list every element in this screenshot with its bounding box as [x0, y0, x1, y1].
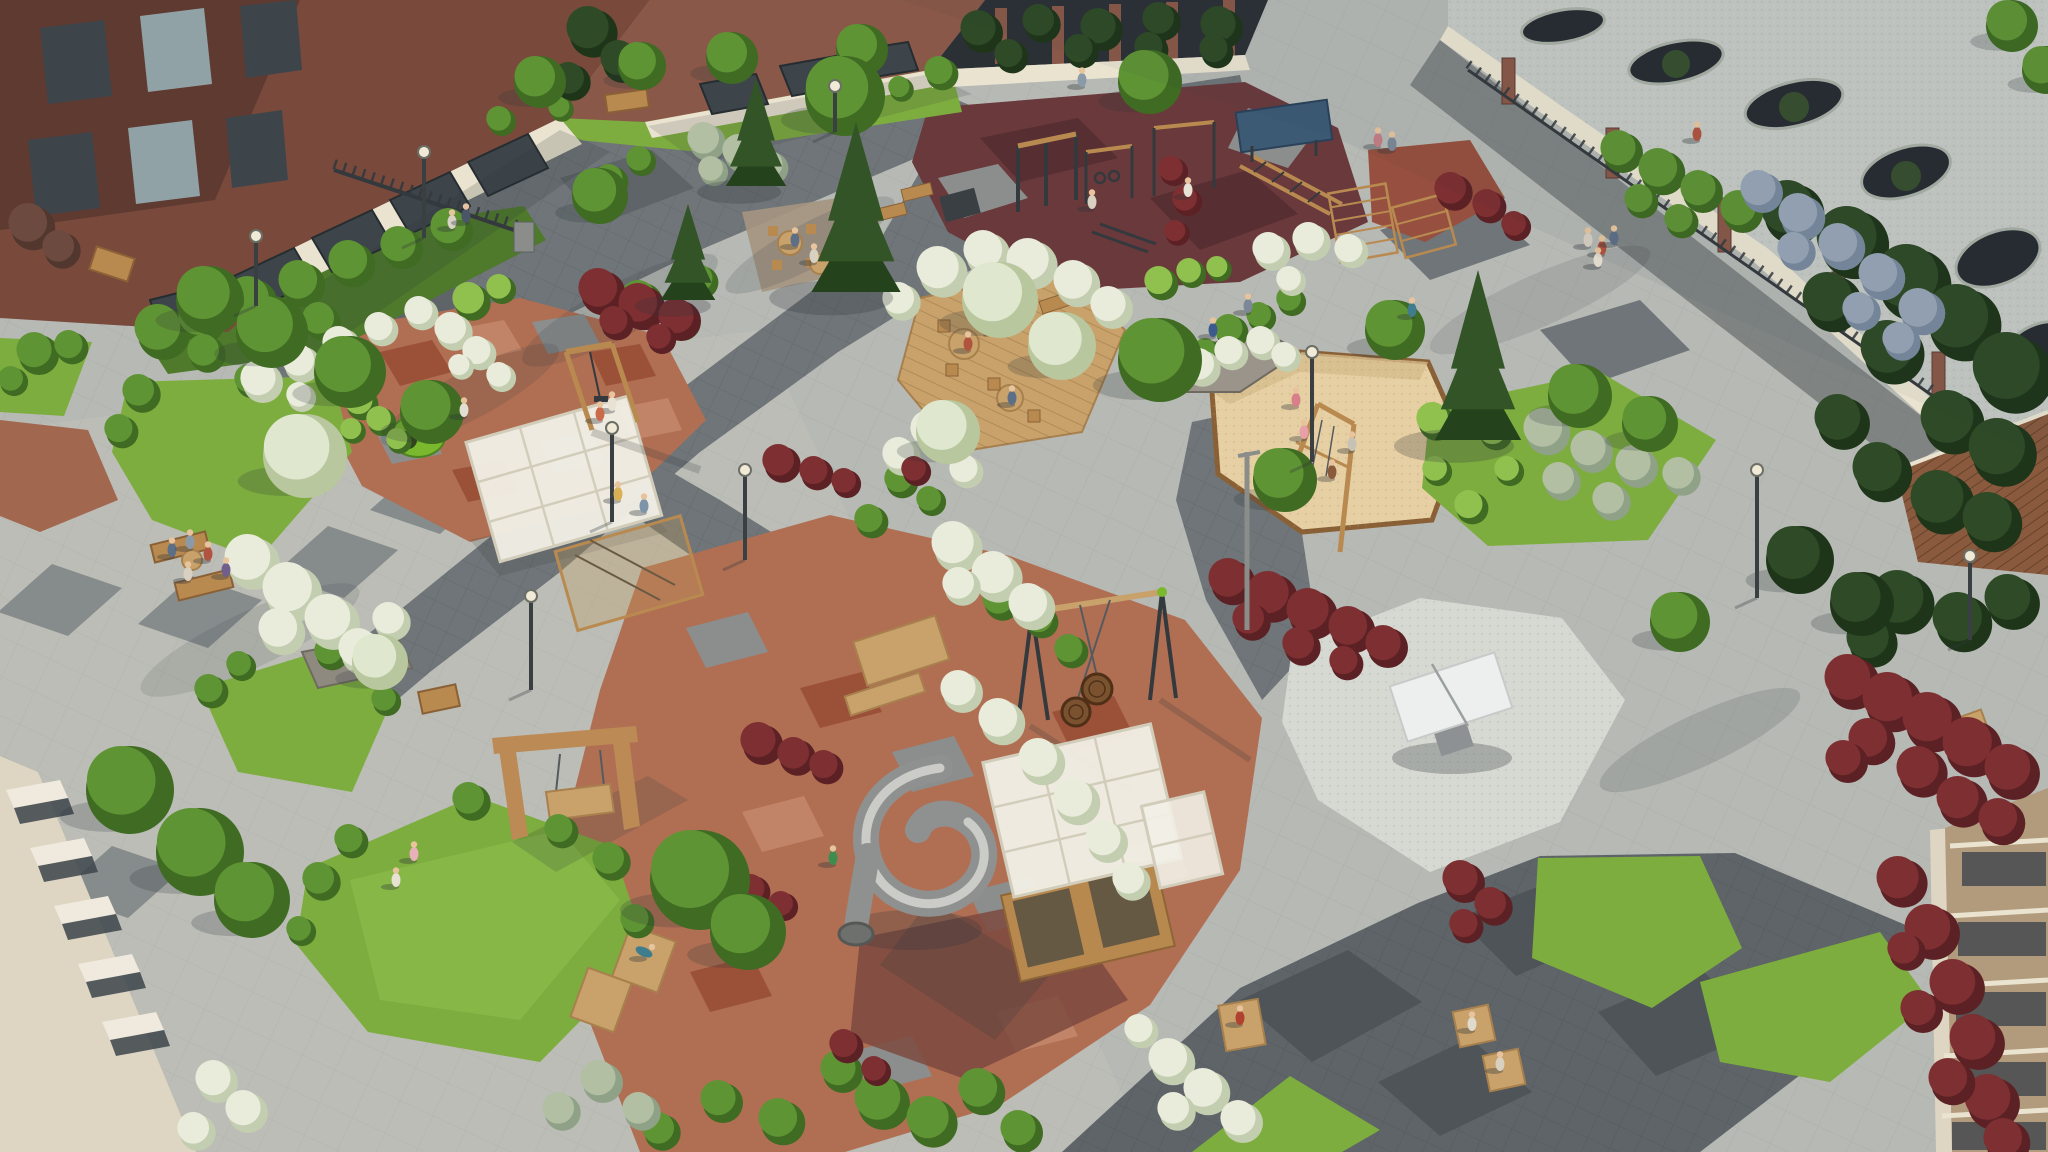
bush-cluster-white: [1252, 232, 1284, 264]
bush-cluster-red: [1158, 156, 1183, 181]
bush-cluster-lime: [340, 418, 361, 439]
bush-cluster-green: [16, 332, 51, 367]
bush-cluster-white: [434, 312, 466, 344]
street-lamp-head: [606, 422, 618, 434]
bush-cluster-white: [942, 567, 974, 599]
bush-cluster-red: [799, 456, 827, 484]
jogger-head: [1210, 317, 1216, 323]
street-lamp-head: [739, 464, 751, 476]
bush-cluster-red: [777, 737, 809, 769]
bush-cluster-green: [544, 814, 572, 842]
bench-group-sitter: [184, 567, 193, 581]
bush-cluster-lime: [1144, 266, 1172, 294]
bush-cluster-red: [1474, 887, 1506, 919]
bush-cluster-sage: [1662, 457, 1694, 489]
bush-cluster-green: [104, 414, 132, 442]
bench-group-sitter-head: [169, 537, 175, 543]
bush-cluster-lime: [1206, 256, 1227, 277]
blossom-tree: [272, 423, 304, 455]
bush-cluster-green: [888, 76, 909, 97]
bush-cluster-red: [831, 468, 856, 493]
cafe-sitter-head: [792, 227, 798, 233]
bush-cluster-red: [1985, 744, 2031, 790]
bush-cluster-red: [1936, 776, 1978, 818]
deck-sitter: [964, 337, 973, 351]
bush-cluster-white: [978, 698, 1017, 737]
bush-cluster-dark: [1985, 574, 2031, 620]
bush-cluster-red: [1978, 798, 2017, 837]
window: [1958, 922, 2046, 956]
street-lamp-head: [418, 146, 430, 158]
exerciser-head: [1089, 189, 1095, 195]
bush-cluster-green: [1054, 634, 1082, 662]
bush-cluster-dark: [1933, 592, 1982, 641]
pedestrian-head: [463, 203, 469, 209]
tree: [407, 387, 431, 411]
street-lamp-head: [250, 230, 262, 242]
bush-cluster-green: [452, 782, 484, 814]
street-lamp-head: [1751, 464, 1763, 476]
bush-cluster-green: [906, 1096, 948, 1138]
tree-dark: [1773, 533, 1799, 559]
bench-group-sitter-head: [187, 529, 193, 535]
pedestrian: [410, 847, 419, 861]
cafe-chair: [806, 224, 816, 234]
tree-dark: [1837, 579, 1861, 603]
window: [1962, 852, 2046, 886]
bush-cluster-green: [328, 240, 367, 279]
bench-group-sitter: [204, 547, 213, 561]
bush-cluster-red: [1943, 717, 1992, 766]
tree: [322, 344, 349, 371]
bush-cluster-white: [1148, 1038, 1187, 1077]
bush-cluster-red: [1329, 646, 1357, 674]
street-lamp-head: [525, 590, 537, 602]
person-on-lounger-head: [649, 944, 655, 950]
window: [226, 110, 288, 188]
bush-cluster-white: [940, 670, 975, 705]
pedestrian: [462, 209, 471, 223]
basket-swing-seat: [1062, 698, 1090, 726]
bush-cluster-red: [1328, 606, 1367, 645]
bush-cluster-white: [1334, 234, 1362, 262]
bush-cluster-red: [861, 1056, 886, 1081]
bush-cluster-sage: [687, 122, 719, 154]
child-playing: [640, 499, 649, 513]
bush-cluster-dark: [1815, 394, 1861, 440]
bush-cluster-white: [916, 246, 958, 288]
child-walking-head: [393, 867, 399, 873]
cafe-sitter: [810, 249, 819, 263]
bush-cluster-red: [1286, 588, 1328, 630]
child-in-sandbox: [1348, 437, 1357, 451]
basket-swing-seat: [1082, 674, 1112, 704]
slide-exit: [856, 855, 868, 928]
bush-cluster-green: [924, 56, 952, 84]
bush-cluster-red: [1449, 909, 1477, 937]
bush-cluster-red: [1164, 220, 1185, 241]
child-playing-head: [641, 493, 647, 499]
bush-cluster-green: [1000, 1110, 1035, 1145]
child-playing-head: [615, 481, 621, 487]
bush-cluster-green: [958, 1068, 997, 1107]
deck-sitter: [1008, 391, 1017, 405]
bush-cluster-white: [225, 534, 271, 580]
tree: [661, 841, 699, 879]
bush-cluster-white: [1157, 1092, 1189, 1124]
cafe-chair: [772, 260, 782, 270]
bush-cluster-sage: [1542, 462, 1574, 494]
bush-cluster-white: [486, 362, 511, 387]
child-walking: [392, 873, 401, 887]
bush-cluster-red: [599, 306, 627, 334]
bench-sitter-head: [1237, 1005, 1243, 1011]
pedestrian-head: [1079, 67, 1085, 73]
pedestrian-head: [411, 841, 417, 847]
tree: [96, 756, 129, 789]
bush-cluster-green: [54, 330, 82, 358]
tree: [1657, 599, 1680, 622]
bush-cluster-red: [1928, 1058, 1967, 1097]
bench-group-sitter: [168, 543, 177, 557]
bush-cluster-red: [1442, 860, 1477, 895]
bush-cluster-white: [1246, 326, 1274, 354]
pedestrian: [1078, 73, 1087, 87]
bush-cluster-red: [1950, 1014, 1996, 1060]
tree: [183, 273, 209, 299]
child-playing: [614, 487, 623, 501]
bush-cluster-red: [809, 750, 837, 778]
bush-cluster-red: [1282, 627, 1314, 659]
exerciser: [1088, 195, 1097, 209]
tree: [166, 818, 199, 851]
blossom-tree: [1035, 319, 1061, 345]
bush-cluster-white: [258, 608, 297, 647]
bush-cluster-white: [1124, 1014, 1152, 1042]
tree: [712, 38, 732, 58]
parent-at-swing: [608, 397, 617, 411]
bush-cluster-dark: [994, 39, 1022, 67]
deck-sitter-head: [965, 331, 971, 337]
bush-cluster-green: [626, 146, 651, 171]
bush-cluster-green: [286, 916, 311, 941]
bush-cluster-white: [1090, 286, 1125, 321]
bush-cluster-lime: [486, 274, 511, 299]
blossom-tree: [970, 270, 999, 299]
child-on-swing-head: [597, 401, 603, 407]
bush-cluster-green: [854, 504, 882, 532]
parent-at-sandbox-head: [1293, 387, 1299, 393]
window: [240, 0, 302, 78]
child-in-sandbox-head: [1301, 419, 1307, 425]
bush-cluster-white: [372, 602, 404, 634]
deck-sitter-head: [1009, 385, 1015, 391]
bush-cluster-sage: [1592, 482, 1624, 514]
street-lamp-head: [1306, 346, 1318, 358]
bush-cluster-white: [1053, 778, 1092, 817]
bush-cluster-white: [1214, 336, 1242, 364]
tree: [578, 174, 599, 195]
tree: [623, 47, 641, 65]
jogger-head: [1409, 297, 1415, 303]
tree: [842, 30, 862, 50]
street-lamp-head: [829, 80, 841, 92]
jogger: [1408, 303, 1417, 317]
bush-cluster-lime: [1176, 258, 1201, 283]
bush-cluster-green: [916, 486, 941, 511]
bush-cluster-sage: [622, 1092, 654, 1124]
window: [128, 120, 200, 204]
bush-cluster-red: [1825, 740, 1860, 775]
window: [40, 20, 112, 104]
child-in-sandbox: [1300, 425, 1309, 439]
parent-at-swing-head: [609, 391, 615, 397]
bush-cluster-dark: [1911, 470, 1964, 523]
bush-cluster-white: [1085, 820, 1120, 855]
bush-cluster-sage: [580, 1060, 615, 1095]
scene-layers: [0, 0, 2048, 1152]
bush-cluster-white: [404, 296, 432, 324]
child-in-sandbox-head: [1329, 459, 1335, 465]
bush-cluster-white: [1112, 862, 1144, 894]
armchair-sitter-head: [1469, 1011, 1475, 1017]
bush-cluster-green: [592, 842, 624, 874]
bench-group-sitter-head: [205, 541, 211, 547]
bush-cluster-red: [1365, 625, 1400, 660]
bush-cluster-green: [486, 106, 511, 131]
bush-cluster-redbrown: [42, 230, 74, 262]
bush-cluster-red: [762, 444, 794, 476]
bush-cluster-green: [700, 1080, 735, 1115]
cafe-chair: [768, 226, 778, 236]
tree: [520, 62, 540, 82]
child-in-sandbox: [1328, 465, 1337, 479]
bench-group-sitter-head: [185, 561, 191, 567]
tree: [222, 870, 251, 899]
bush-cluster-green: [122, 374, 154, 406]
bush-cluster-white: [195, 1060, 230, 1095]
armchair-sitter-head: [1497, 1051, 1503, 1057]
deck-chair: [1028, 410, 1040, 422]
bush-cluster-sage: [698, 156, 723, 181]
exerciser: [1184, 183, 1193, 197]
deck-chair: [988, 378, 1000, 390]
bush-cluster-white: [1018, 738, 1057, 777]
exerciser-head: [1185, 177, 1191, 183]
window: [140, 8, 212, 92]
blossom-tree: [358, 640, 379, 661]
bush-cluster-lime: [1494, 456, 1519, 481]
bush-cluster-red: [1896, 746, 1938, 788]
courtyard-aerial-render: [0, 0, 2048, 1152]
parent-at-sandbox: [1292, 393, 1301, 407]
bush-cluster-lime: [452, 282, 484, 314]
bush-cluster-white: [263, 562, 312, 611]
bench-group-sitter-head: [223, 557, 229, 563]
pedestrian-head: [461, 397, 467, 403]
pedestrian: [460, 403, 469, 417]
pedestrian-head: [449, 209, 455, 215]
child-in-green-dress-head: [830, 845, 836, 851]
bush-cluster-dark: [566, 6, 608, 48]
child-in-sandbox-head: [1349, 431, 1355, 437]
bush-cluster-white: [931, 521, 973, 563]
deck-chair: [946, 364, 958, 376]
blossom-tree: [923, 407, 947, 431]
bush-cluster-white: [448, 354, 469, 375]
bush-cluster-white: [1271, 342, 1296, 367]
bush-cluster-green: [194, 674, 222, 702]
bench-sitter: [1236, 1011, 1245, 1025]
bush-cluster-sage: [1570, 430, 1605, 465]
jogger: [1209, 323, 1218, 337]
bench-group-sitter: [222, 563, 231, 577]
bush-cluster-red: [1876, 856, 1918, 898]
bush-cluster-green: [278, 260, 317, 299]
bush-cluster-sage: [542, 1092, 574, 1124]
child-on-swing: [596, 407, 605, 421]
cafe-sitter: [791, 233, 800, 247]
tree: [1555, 371, 1579, 395]
armchair-sitter: [1468, 1017, 1477, 1031]
bush-cluster-red: [740, 722, 775, 757]
bush-cluster-white: [364, 312, 392, 340]
bush-cluster-dark: [1963, 492, 2012, 541]
bush-cluster-red: [829, 1029, 857, 1057]
bush-cluster-lime: [1454, 490, 1482, 518]
bush-cluster-white: [1008, 583, 1047, 622]
tree: [718, 902, 747, 931]
tree: [1372, 307, 1395, 330]
bush-cluster-red: [1887, 932, 1919, 964]
bush-cluster-white: [1276, 266, 1301, 291]
armchair-sitter: [1496, 1057, 1505, 1071]
bush-cluster-redbrown: [8, 203, 47, 242]
swing-post-cap: [1157, 587, 1167, 597]
bush-cluster-white: [305, 594, 351, 640]
bush-cluster-white: [177, 1112, 209, 1144]
scene-svg: [0, 0, 2048, 1152]
window: [28, 132, 100, 216]
bush-cluster-red: [1208, 558, 1247, 597]
slide-mouth: [839, 923, 873, 945]
bush-cluster-red: [646, 324, 671, 349]
gate-pillar: [514, 222, 534, 252]
bush-cluster-green: [758, 1098, 797, 1137]
pedestrian-head: [1245, 293, 1251, 299]
bush-cluster-dark: [1853, 442, 1902, 491]
child-in-green-dress: [829, 851, 838, 865]
bush-cluster-white: [225, 1090, 260, 1125]
swing-seat: [594, 396, 608, 402]
tree: [1260, 455, 1284, 479]
bush-cluster-green: [226, 651, 251, 676]
bush-cluster-white: [1292, 222, 1324, 254]
pedestrian: [1244, 299, 1253, 313]
cafe-sitter-head: [811, 243, 817, 249]
tree: [1127, 327, 1159, 359]
bush-cluster-green: [334, 824, 362, 852]
bush-cluster-red: [1930, 959, 1976, 1005]
bush-cluster-white: [1220, 1100, 1255, 1135]
bush-cluster-green: [187, 334, 219, 366]
bush-cluster-red: [578, 268, 617, 307]
street-lamp-head: [1964, 550, 1976, 562]
bush-cluster-white: [1053, 260, 1092, 299]
bush-cluster-green: [302, 862, 334, 894]
bench-group-sitter: [186, 535, 195, 549]
tree: [1628, 402, 1649, 423]
bush-cluster-red: [1900, 990, 1935, 1025]
